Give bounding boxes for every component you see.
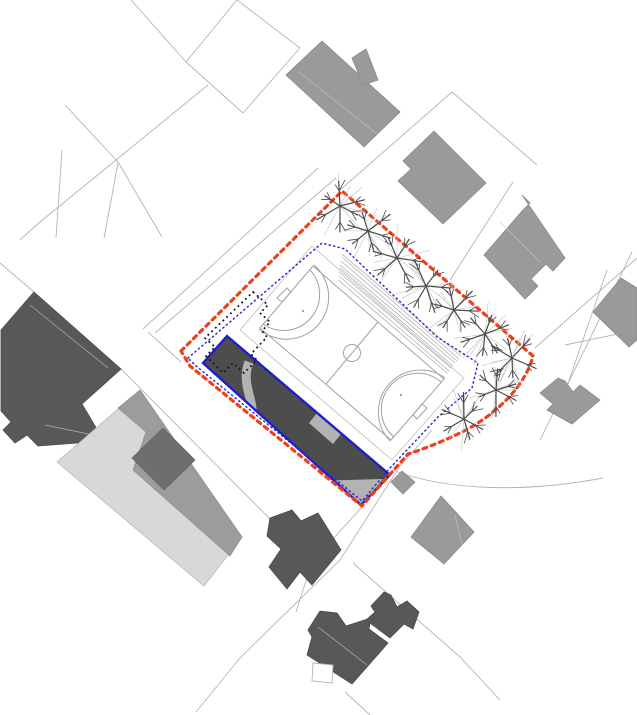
site-plan xyxy=(0,0,637,715)
site-plan-canvas xyxy=(0,0,637,715)
tree-branch xyxy=(463,393,464,419)
penalty-mark xyxy=(302,310,304,312)
tree-branch xyxy=(512,358,513,378)
penalty-mark xyxy=(400,394,402,396)
yard-square-outline xyxy=(312,663,333,683)
